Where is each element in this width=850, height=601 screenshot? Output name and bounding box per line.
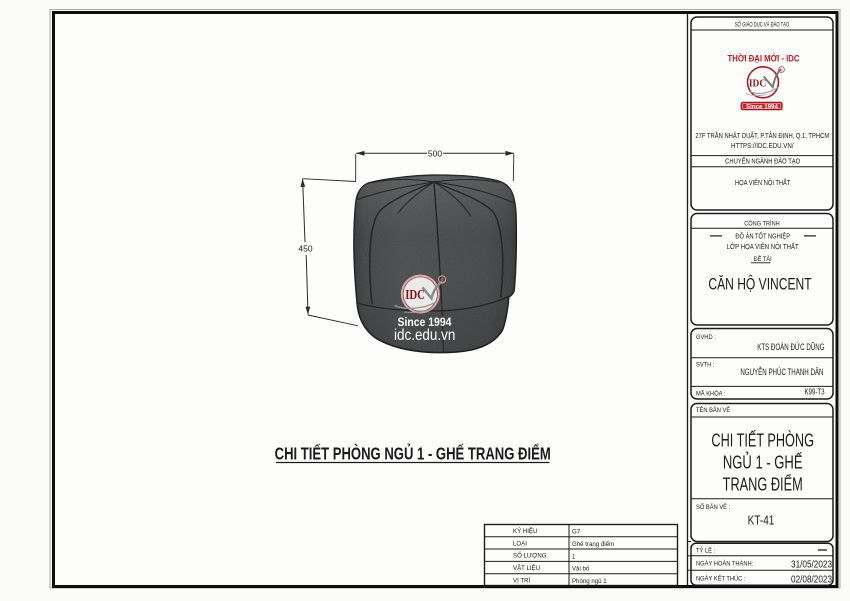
svg-text:TRANG ĐIỂM: TRANG ĐIỂM	[723, 473, 803, 495]
svg-text:TỶ LỆ :: TỶ LỆ :	[696, 546, 715, 554]
svg-text:NGÀY HOÀN THÀNH:: NGÀY HOÀN THÀNH:	[696, 560, 754, 567]
svg-text:Ghế trang điểm: Ghế trang điểm	[572, 539, 614, 548]
svg-text:1: 1	[572, 553, 576, 560]
svg-text:SVTH :: SVTH :	[696, 361, 715, 368]
svg-text:450: 450	[298, 244, 312, 254]
svg-text:IDC: IDC	[749, 78, 766, 90]
svg-text:ĐỀ TÀI: ĐỀ TÀI	[754, 256, 772, 263]
svg-text:500: 500	[428, 148, 442, 158]
svg-text:K99-T3: K99-T3	[804, 386, 824, 396]
svg-text:IDC: IDC	[405, 287, 425, 302]
svg-text:KTS ĐOÀN ĐỨC DŨNG: KTS ĐOÀN ĐỨC DŨNG	[757, 342, 824, 353]
svg-text:NGỦ 1 - GHẾ: NGỦ 1 - GHẾ	[723, 451, 803, 473]
svg-text:LOẠI: LOẠI	[513, 540, 527, 547]
svg-text:Vải bố: Vải bố	[572, 563, 590, 572]
svg-text:CĂN HỘ VINCENT: CĂN HỘ VINCENT	[708, 275, 811, 295]
svg-text:NGUYỄN PHÚC THANH DÂN: NGUYỄN PHÚC THANH DÂN	[740, 366, 823, 377]
svg-text:CHUYÊN NGÀNH ĐÀO TẠO: CHUYÊN NGÀNH ĐÀO TẠO	[725, 156, 800, 166]
svg-text:CHI TIẾT PHÒNG: CHI TIẾT PHÒNG	[711, 429, 814, 451]
svg-text:idc.edu.vn: idc.edu.vn	[394, 327, 455, 344]
svg-text:NGÀY KẾT THÚC :: NGÀY KẾT THÚC :	[696, 575, 746, 582]
svg-text:R: R	[780, 68, 783, 73]
svg-text:CÔNG TRÌNH: CÔNG TRÌNH	[744, 220, 780, 227]
svg-text:TÊN BẢN VẼ: TÊN BẢN VẼ	[696, 406, 730, 414]
svg-text:CHI TIẾT PHÒNG NGỦ 1 - GHẾ TRA: CHI TIẾT PHÒNG NGỦ 1 - GHẾ TRANG ĐIỂM	[275, 444, 551, 464]
svg-text:Phòng ngủ 1: Phòng ngủ 1	[572, 577, 607, 585]
svg-text:31/05/2023: 31/05/2023	[791, 557, 832, 569]
svg-text:GVHD :: GVHD :	[696, 334, 716, 341]
svg-text:KÝ HIỆU: KÝ HIỆU	[513, 526, 538, 535]
svg-text:MÃ KHÓA :: MÃ KHÓA :	[696, 390, 726, 397]
svg-text:VỊ TRÍ: VỊ TRÍ	[513, 575, 530, 584]
svg-text:THỜI ĐẠI MỚI - IDC: THỜI ĐẠI MỚI - IDC	[728, 52, 800, 64]
svg-text:HTTPS://IDC.EDU.VN/: HTTPS://IDC.EDU.VN/	[731, 143, 794, 150]
svg-text:SỐ BẢN VẼ :: SỐ BẢN VẼ :	[696, 504, 730, 511]
svg-text:Since 1994: Since 1994	[746, 103, 778, 110]
svg-text:VẬT LIỆU: VẬT LIỆU	[513, 563, 540, 572]
svg-text:SỞ GIÁO DỤC VÀ ĐÀO TẠO: SỞ GIÁO DỤC VÀ ĐÀO TẠO	[735, 21, 789, 29]
svg-text:KT-41: KT-41	[748, 515, 775, 528]
svg-text:G7: G7	[572, 528, 581, 535]
svg-text:02/08/2023: 02/08/2023	[791, 572, 832, 584]
